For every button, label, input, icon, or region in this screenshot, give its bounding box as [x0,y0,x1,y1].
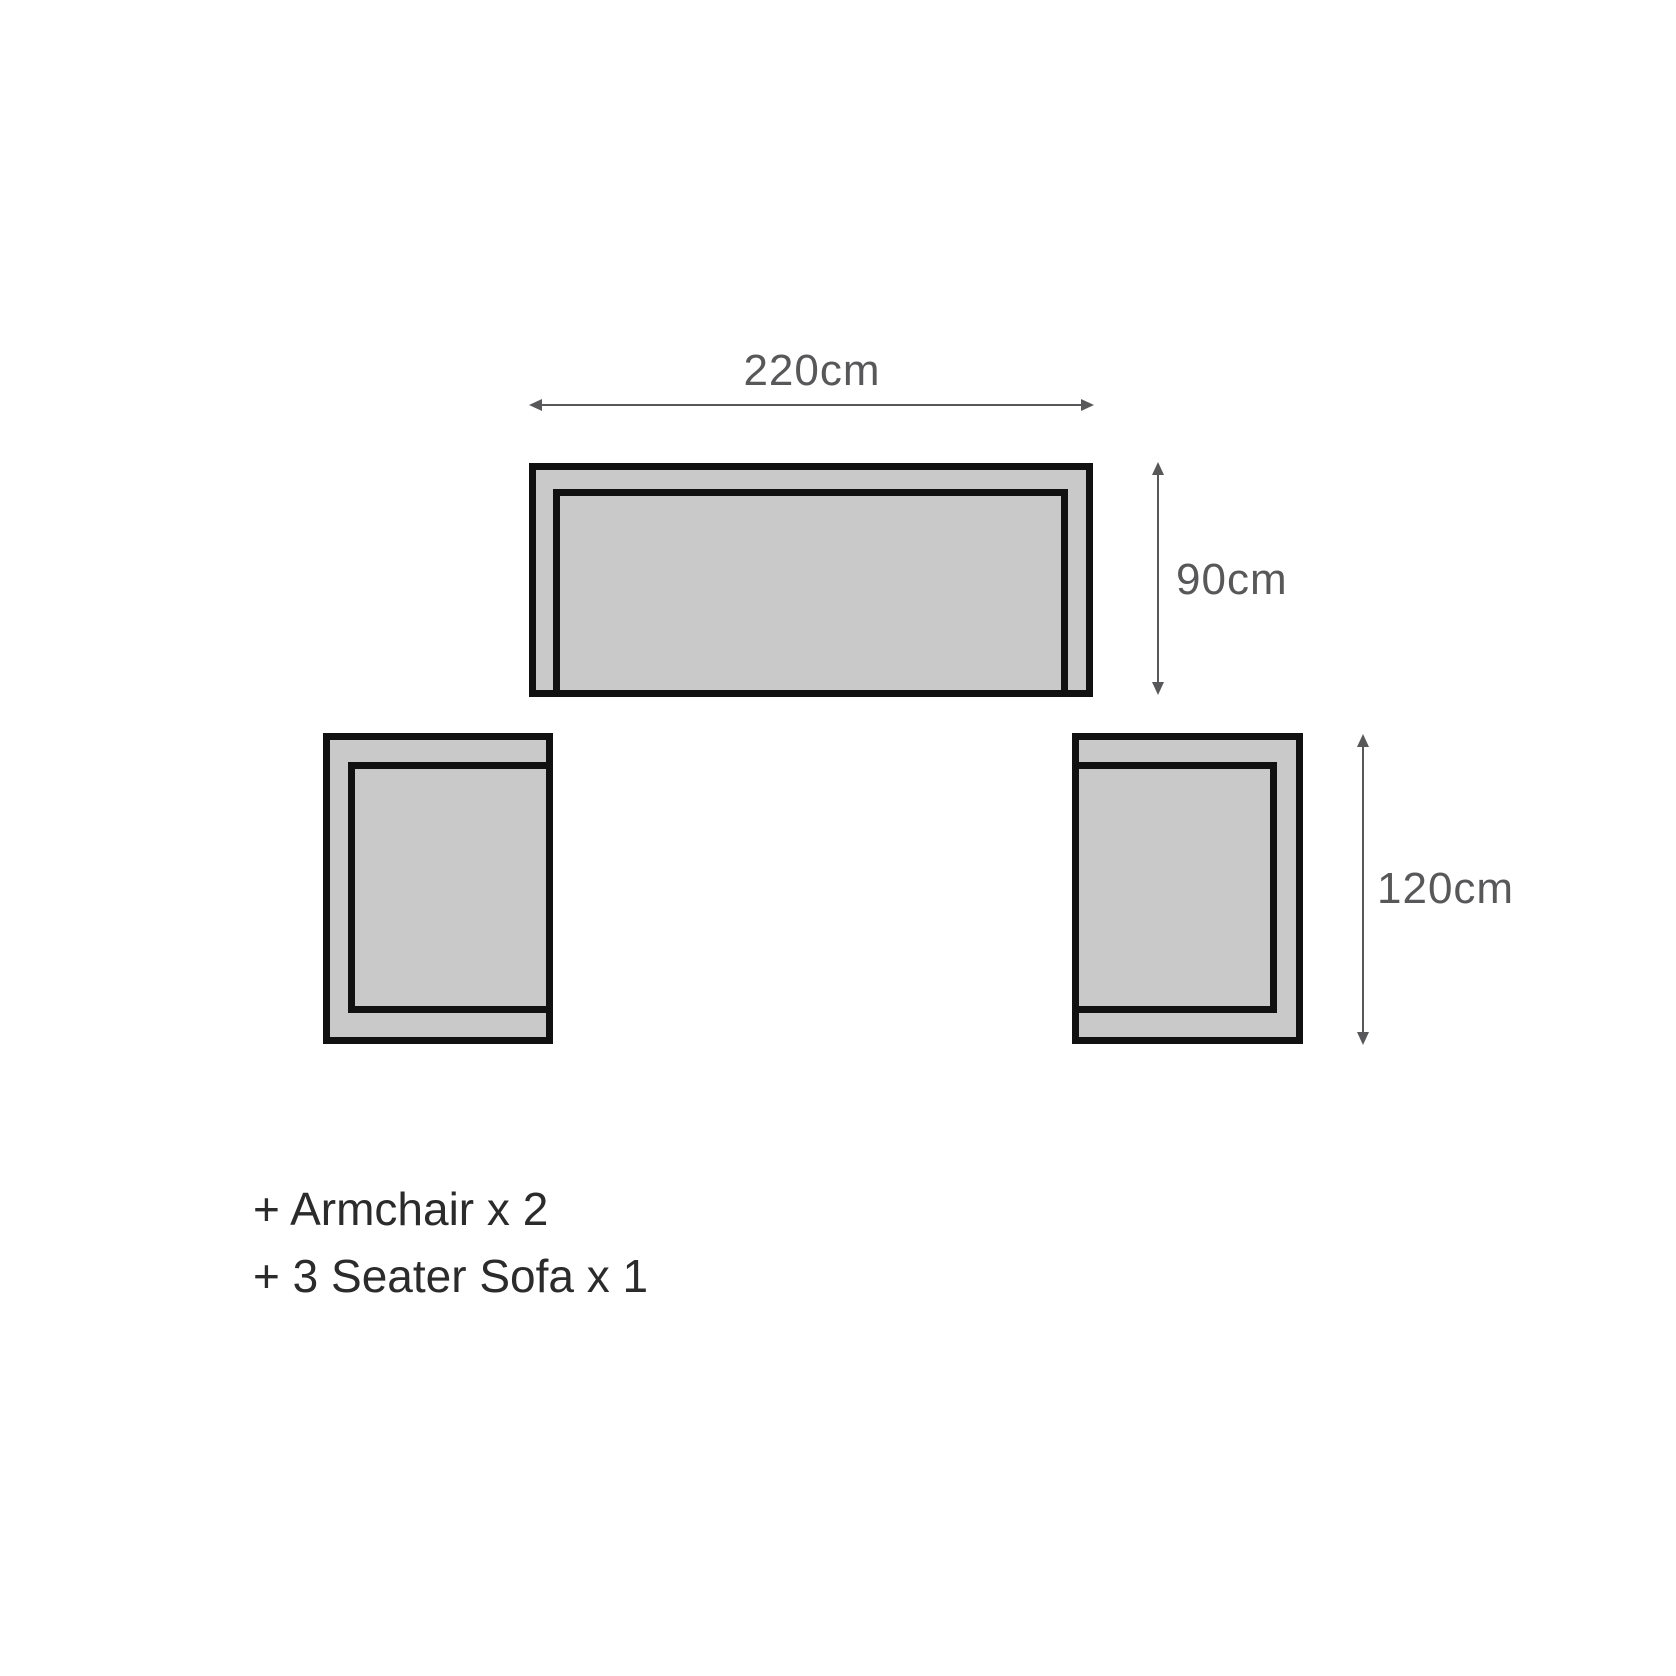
legend-item-armchair: + Armchair x 2 [253,1176,648,1243]
sofa-depth-label: 90cm [1176,558,1288,602]
furniture-dimension-diagram: 220cm 90cm 120cm + Armchair x 2 + 3 Seat… [0,0,1676,1676]
sofa-width-label: 220cm [743,349,880,393]
armchair-right-top-view [1072,733,1303,1044]
armchair-left-seat-outline [348,762,546,1013]
sofa-top-view [529,463,1093,697]
sofa-depth-dimension-arrow [1157,464,1159,693]
armchair-left-top-view [323,733,553,1044]
legend-item-sofa: + 3 Seater Sofa x 1 [253,1243,648,1310]
sofa-width-dimension-arrow [531,404,1092,406]
set-contents-legend: + Armchair x 2 + 3 Seater Sofa x 1 [253,1176,648,1310]
armchair-depth-dimension-arrow [1362,736,1364,1043]
sofa-seat-outline [553,489,1068,690]
armchair-right-seat-outline [1079,762,1277,1013]
armchair-depth-label: 120cm [1377,867,1514,911]
